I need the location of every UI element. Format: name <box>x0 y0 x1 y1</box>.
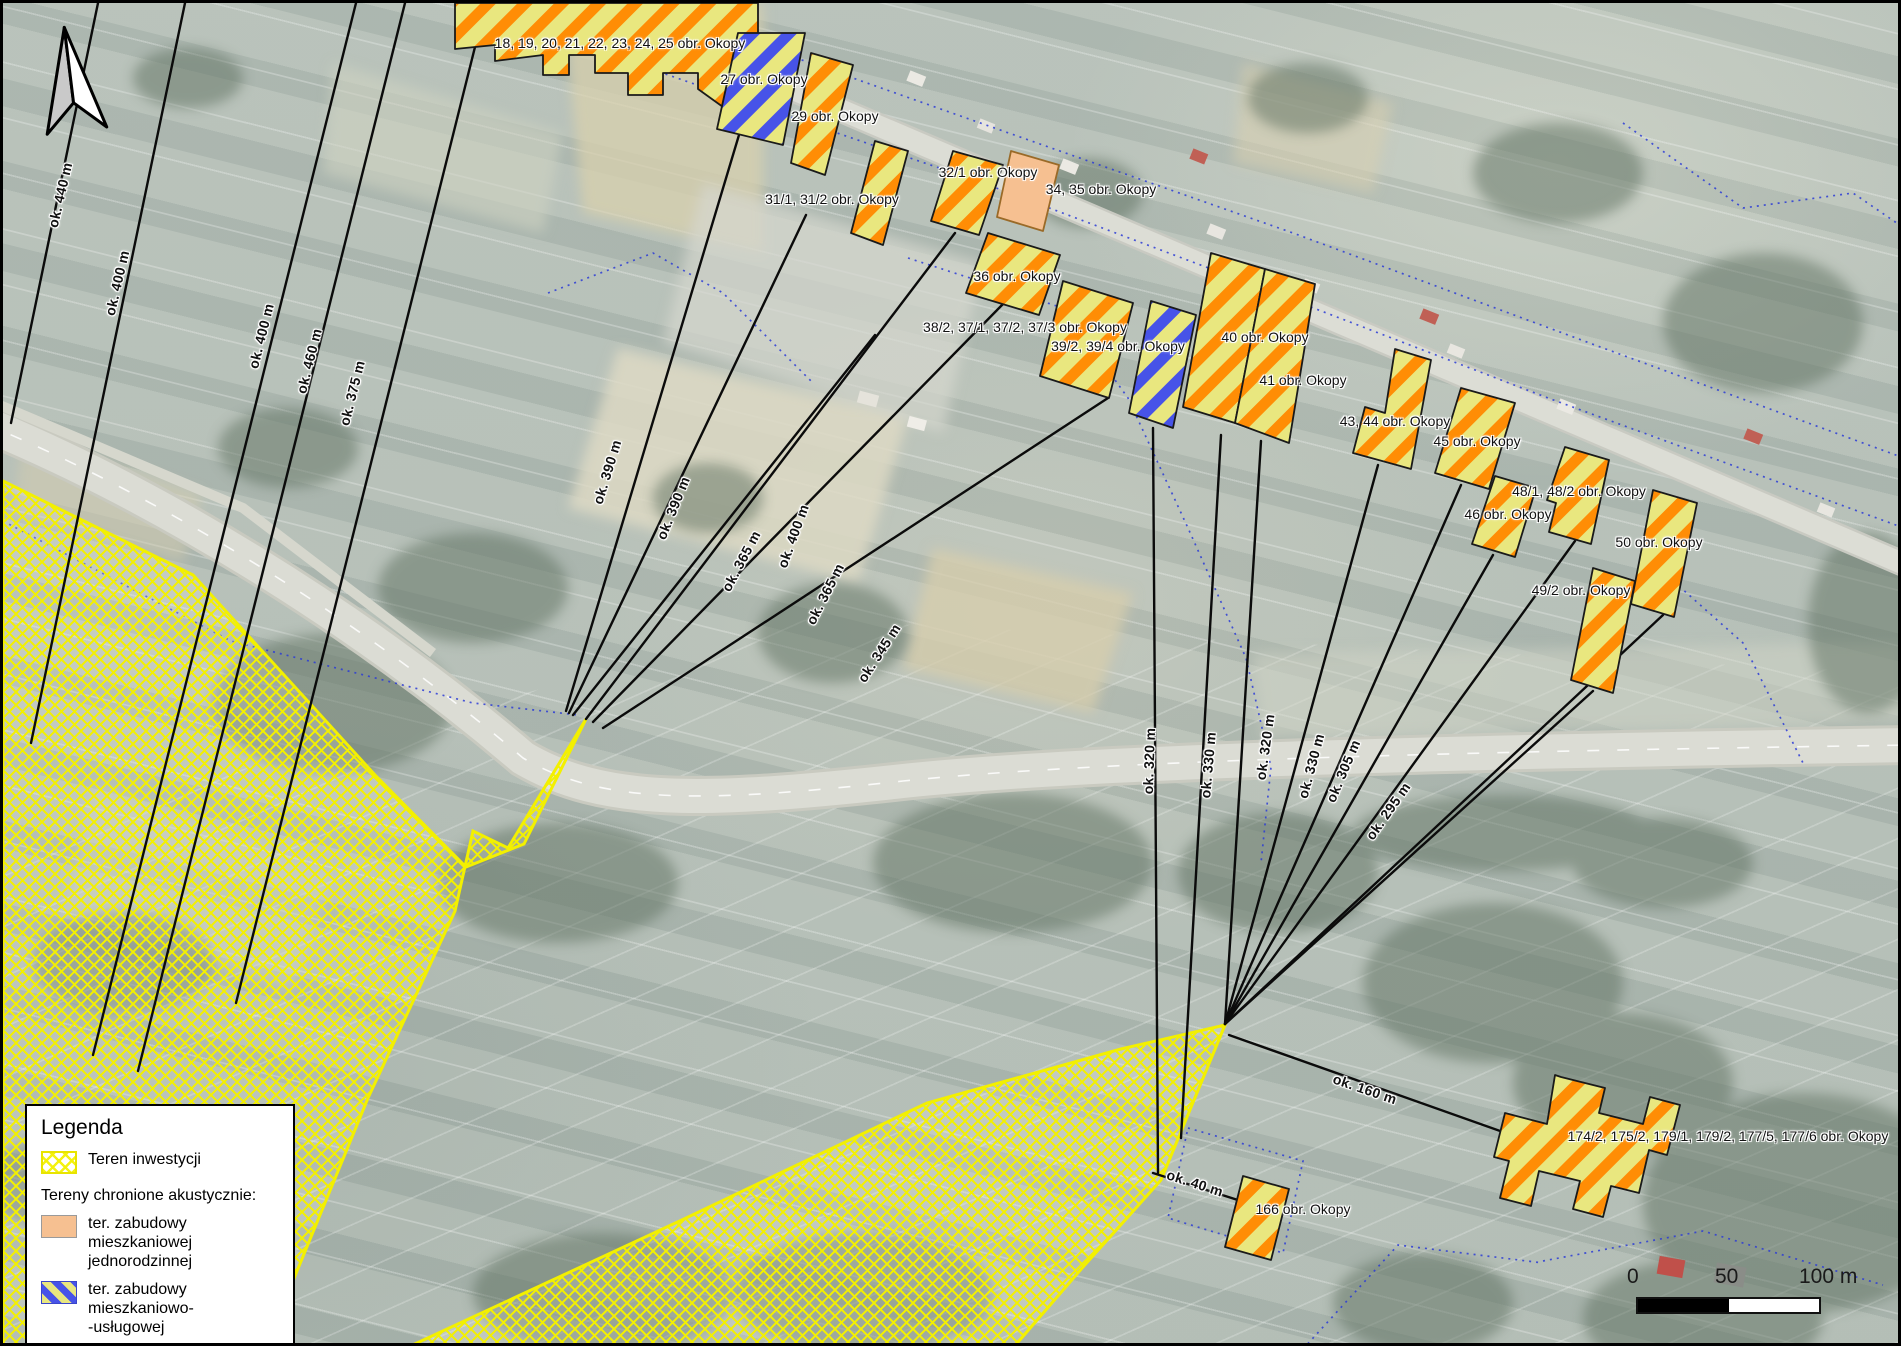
north-arrow-icon <box>35 24 107 135</box>
area-farm-45 <box>1435 388 1515 489</box>
area-farm-31 <box>851 141 908 245</box>
legend-panel: Legenda Teren inwestycji Tereny chronion… <box>25 1104 295 1346</box>
mixed-use-swatch-icon <box>41 1281 77 1304</box>
scale-tick-50: 50 <box>1715 1265 1738 1289</box>
map-canvas[interactable]: 18, 19, 20, 21, 22, 23, 24, 25 obr. Okop… <box>0 0 1901 1346</box>
scale-tick-0: 0 <box>1627 1265 1639 1289</box>
legend-title: Legenda <box>41 1116 281 1140</box>
scale-tick-100: 100 m <box>1799 1265 1857 1289</box>
area-farm-36 <box>966 233 1060 315</box>
legend-item-residential: ter. zabudowy mieszkaniowej jednorodzinn… <box>41 1214 281 1271</box>
scale-bar: 0 50 100 m <box>1603 1265 1863 1314</box>
area-mixed-39 <box>1129 301 1196 428</box>
area-farm-37-38 <box>1040 281 1133 398</box>
area-farm-166 <box>1225 1176 1289 1260</box>
area-farm-46 <box>1472 476 1536 557</box>
legend-item-mixed: ter. zabudowy mieszkaniowo- -usługowej <box>41 1280 281 1337</box>
scale-bar-graphic <box>1636 1297 1821 1314</box>
area-farm-50 <box>1631 490 1697 617</box>
area-farm-48 <box>1547 447 1609 544</box>
investment-swatch-icon <box>41 1151 77 1174</box>
legend-section-protected: Tereny chronione akustycznie: <box>41 1187 281 1205</box>
residential-swatch-icon <box>41 1215 77 1238</box>
investment-area-south <box>404 1025 1225 1346</box>
area-residential-34-35 <box>997 151 1059 231</box>
legend-item-investment: Teren inwestycji <box>41 1150 281 1174</box>
area-farm-43-44 <box>1353 349 1431 469</box>
